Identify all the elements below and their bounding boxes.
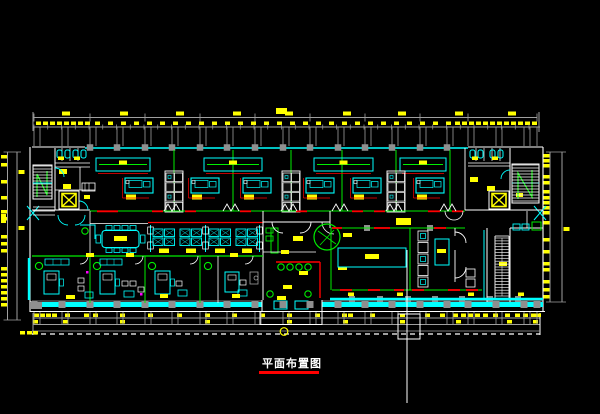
center-core xyxy=(250,211,352,300)
corridor xyxy=(90,211,463,256)
top-dimension-strip xyxy=(33,108,540,146)
right-wing xyxy=(330,211,543,302)
hall-stair-rungs xyxy=(496,238,509,296)
section-markers xyxy=(398,250,420,403)
guest-rooms xyxy=(90,150,465,212)
left-core xyxy=(32,148,95,210)
bottom-dimension-strip xyxy=(32,312,541,336)
floor-plan-svg xyxy=(0,0,600,414)
title-underline xyxy=(259,371,319,374)
drawing-title: 平面布置图 xyxy=(262,355,322,371)
cad-drawing: 平面布置图 xyxy=(0,0,600,414)
right-dimension-strip xyxy=(544,152,570,302)
lower-offices xyxy=(32,253,263,303)
